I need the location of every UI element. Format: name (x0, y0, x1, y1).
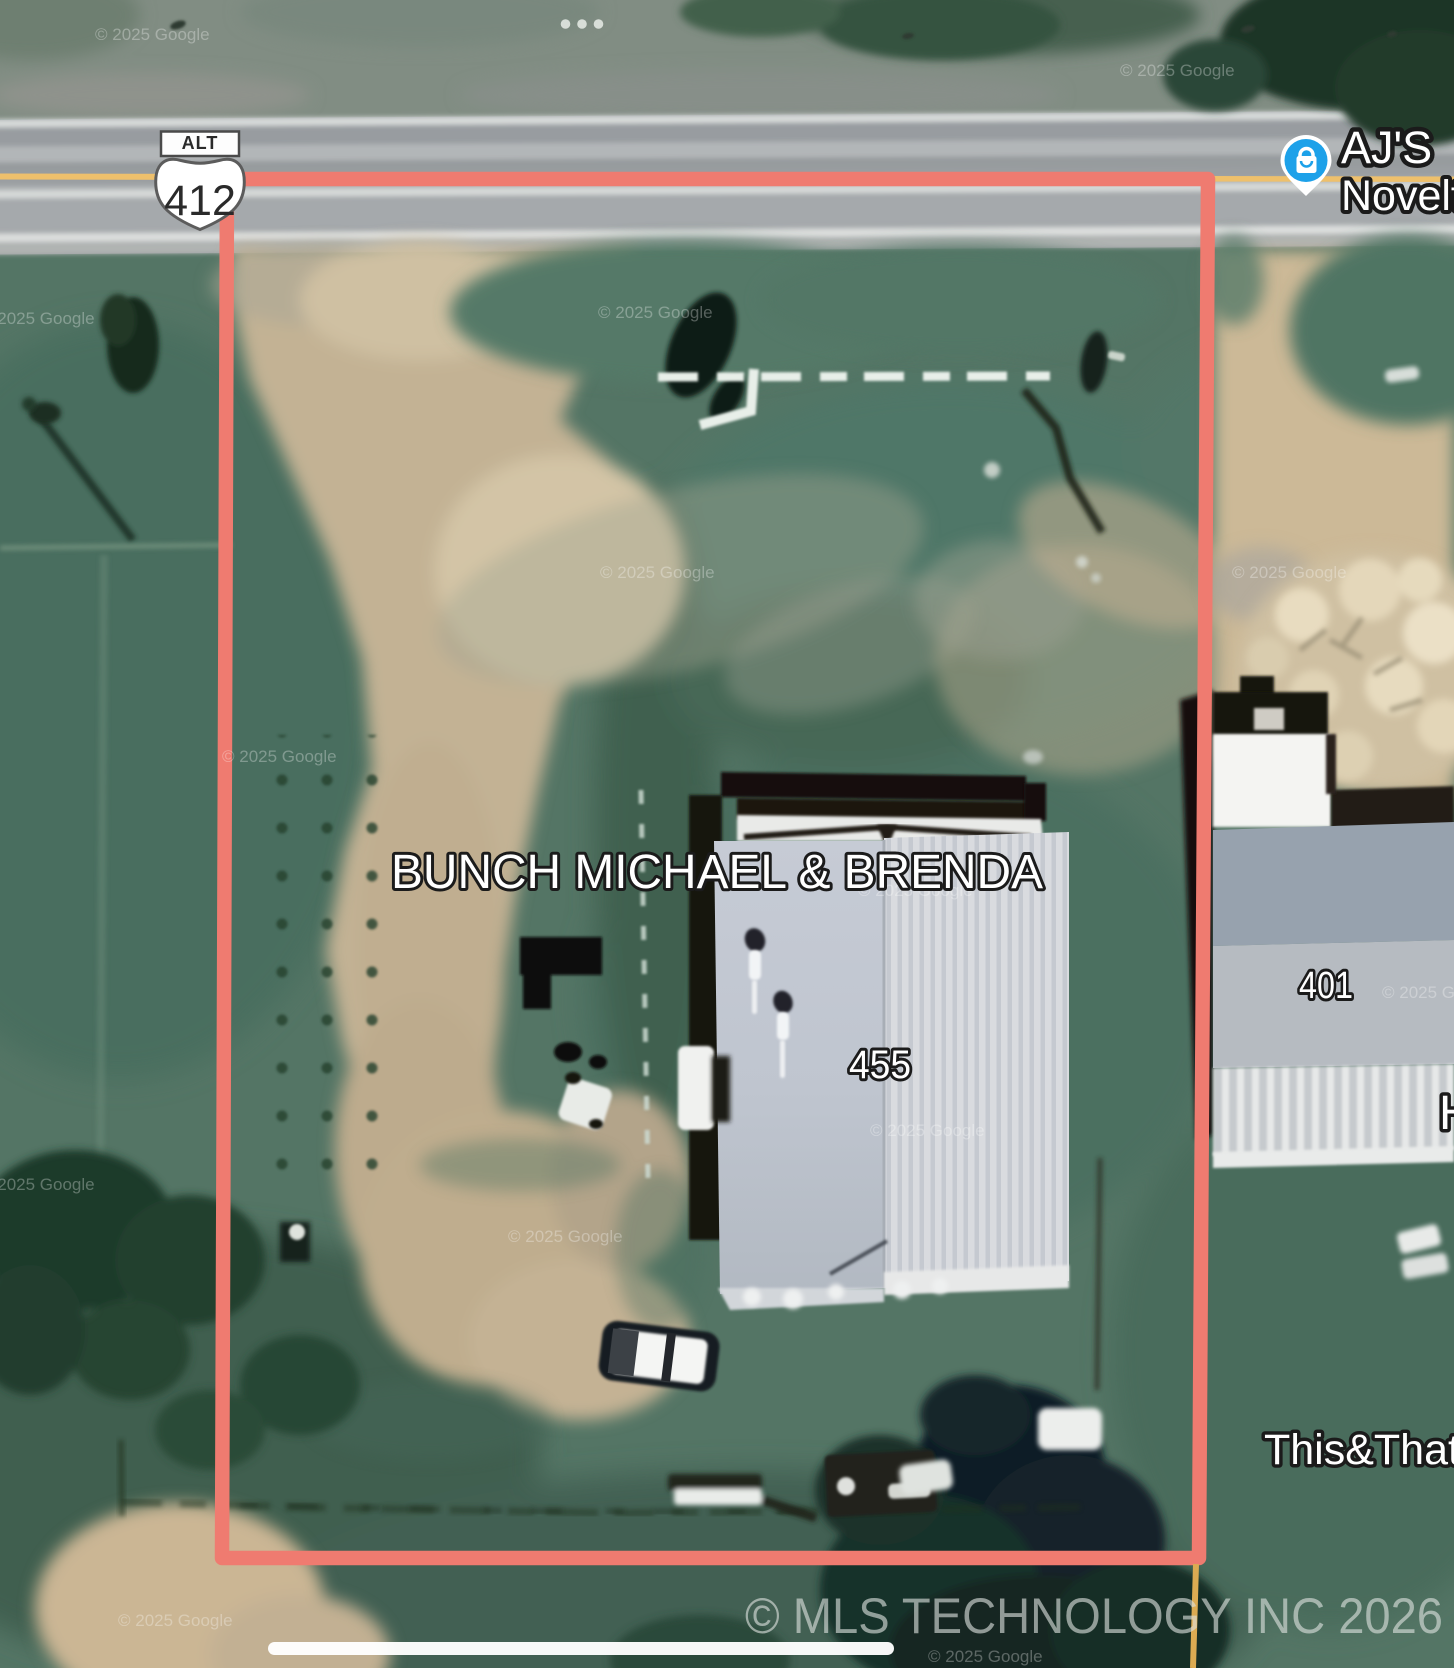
svg-text:412: 412 (164, 177, 236, 225)
svg-text:© 2025 Google: © 2025 Google (118, 1611, 233, 1630)
svg-text:BUNCH MICHAEL & BRENDA: BUNCH MICHAEL & BRENDA (391, 846, 1043, 899)
svg-text:© 2025 Google: © 2025 Google (600, 563, 715, 582)
svg-text:455: 455 (849, 1043, 911, 1087)
svg-text:© 2025 Google: © 2025 Google (1232, 563, 1347, 582)
svg-text:AJ'S: AJ'S (1341, 122, 1432, 173)
svg-text:© 2025 Google: © 2025 Google (95, 25, 210, 44)
svg-text:© 2025 Google: © 2025 Google (0, 1175, 95, 1194)
svg-text:© MLS TECHNOLOGY INC 2026: © MLS TECHNOLOGY INC 2026 (745, 1588, 1443, 1644)
svg-text:© 2025 Google: © 2025 Google (0, 309, 95, 328)
svg-text:Novelty: Novelty (1341, 172, 1454, 220)
svg-text:H: H (1439, 1087, 1454, 1140)
svg-text:© 2025 Google: © 2025 Google (928, 1647, 1043, 1666)
svg-text:© 2025 Google: © 2025 Google (222, 747, 337, 766)
svg-text:ALT: ALT (182, 133, 219, 153)
svg-text:© 2025 Google: © 2025 Google (508, 1227, 623, 1246)
svg-text:© 2025 Google: © 2025 Google (870, 1121, 985, 1140)
svg-text:© 2025 Google: © 2025 Google (1120, 61, 1235, 80)
svg-text:This&That: This&That (1264, 1426, 1454, 1474)
svg-text:401: 401 (1299, 965, 1353, 1007)
svg-text:© 2025 Google: © 2025 Google (1382, 983, 1454, 1002)
svg-text:© 2025 Google: © 2025 Google (598, 303, 713, 322)
